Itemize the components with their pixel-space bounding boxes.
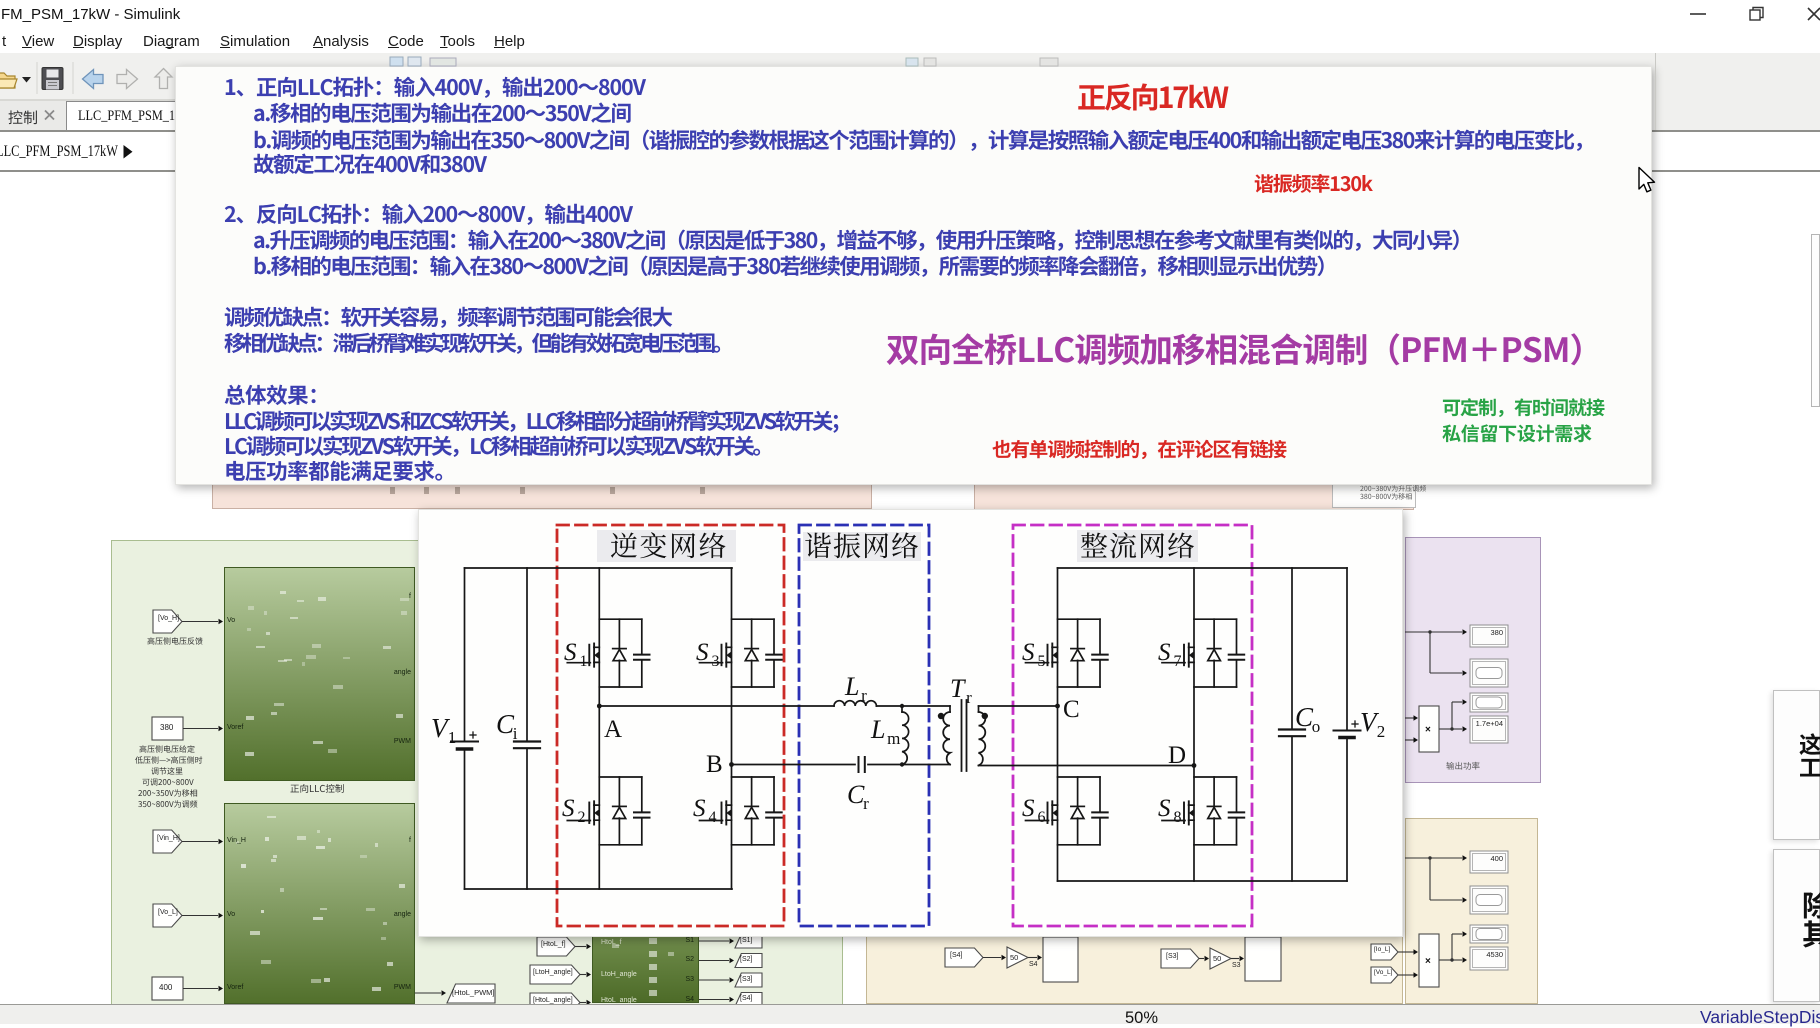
svg-text:S4: S4 [1029,961,1038,968]
svg-text:×: × [1425,956,1431,967]
svg-text:50: 50 [1010,953,1018,962]
svg-text:×: × [1425,725,1431,736]
svg-text:50: 50 [1213,954,1221,963]
svg-text:S3: S3 [1232,962,1241,969]
